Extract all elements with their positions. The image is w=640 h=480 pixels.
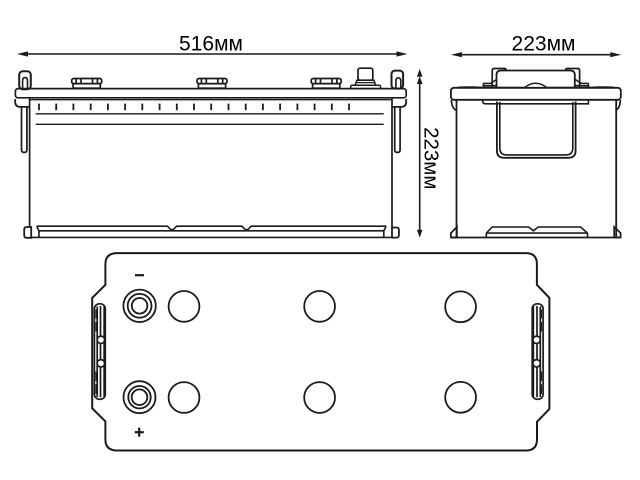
svg-text:223мм: 223мм xyxy=(420,127,443,189)
svg-text:516мм: 516мм xyxy=(179,33,243,56)
svg-text:223мм: 223мм xyxy=(512,33,576,56)
